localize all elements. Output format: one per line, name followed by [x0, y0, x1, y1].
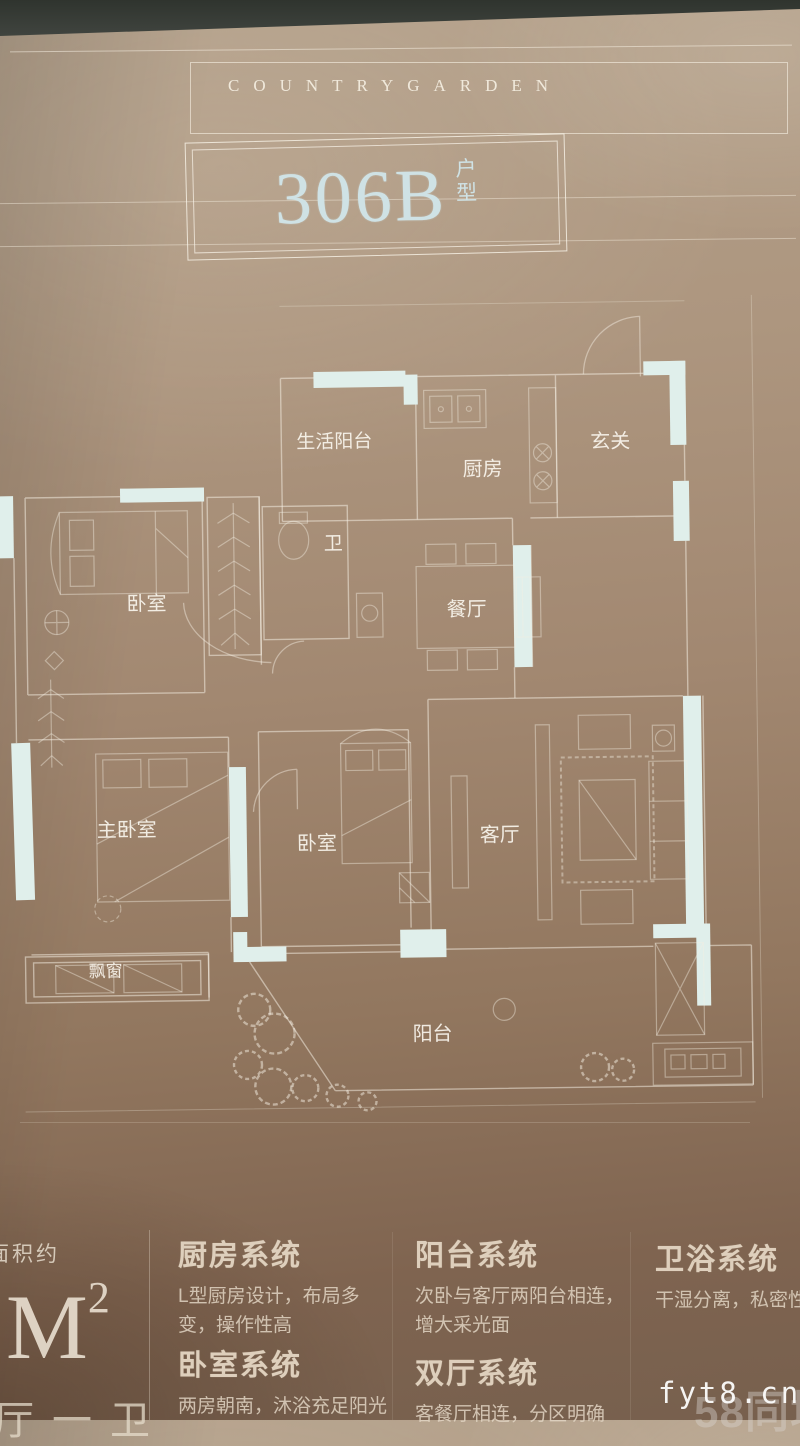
label-bedroom: 卧室: [126, 592, 166, 616]
bed-bedroom2: [340, 729, 412, 864]
info-column-kitchen: 厨房系统 L型厨房设计，布局多变，操作性高: [178, 1232, 396, 1340]
label-dining: 餐厅: [447, 598, 487, 622]
balcony-bench: [653, 1042, 754, 1085]
layout-summary-partial: 厅一卫: [0, 1388, 168, 1446]
bedroom2-rug-lines: [399, 872, 429, 902]
bath-door-arc: [272, 641, 304, 673]
label-bedroom2: 卧室: [297, 832, 337, 856]
hall-cabinet: [451, 776, 469, 888]
master-rug: [95, 896, 121, 922]
wardrobe-hangers-left: [38, 679, 65, 767]
balcony-system-title: 阳台系统: [415, 1232, 637, 1274]
label-balcony: 阳台: [412, 1022, 452, 1046]
label-foyer: 玄关: [590, 430, 630, 454]
label-service-balcony: 生活阳台: [296, 430, 372, 453]
brand-frame: [190, 62, 788, 134]
kitchen-sink: [424, 390, 487, 429]
label-living: 客厅: [480, 823, 520, 847]
halls-system-title: 双厅系统: [415, 1350, 645, 1392]
bedroom-system-title: 卧室系统: [178, 1342, 408, 1384]
bathroom-system-desc: 干湿分离，私密性: [655, 1287, 800, 1316]
floor-plan-drawing: 生活阳台 厨房 玄关 卧室 卫 餐厅 主卧室 卧室 客厅 飘窗 阳台: [0, 290, 776, 1121]
info-column-bathroom: 卫浴系统 干湿分离，私密性: [655, 1236, 800, 1316]
label-bath: 卫: [324, 534, 343, 555]
bed-bedroom1: [50, 511, 188, 595]
tv-cabinet: [535, 725, 552, 920]
info-column-bedroom: 卧室系统 两房朝南，沐浴充足阳光: [178, 1342, 408, 1422]
label-kitchen: 厨房: [463, 457, 503, 481]
area-digit: 8: [0, 1258, 2, 1378]
balcony-plants: [233, 989, 635, 1113]
site-watermark: fyt8.cn: [658, 1376, 800, 1410]
kitchen-system-desc: L型厨房设计，布局多变，操作性高: [178, 1283, 396, 1340]
frame-line-top: [10, 45, 792, 53]
area-unit: M: [6, 1281, 88, 1373]
area-superscript: 2: [88, 1276, 110, 1320]
walls-thick: [0, 361, 711, 1016]
unit-type-char-1: 户: [455, 157, 477, 182]
unit-type-char-2: 型: [456, 182, 478, 207]
unit-code: 306B: [274, 153, 448, 242]
label-bay-window: 飘窗: [89, 962, 123, 981]
entry-door-arc: [583, 316, 641, 377]
plan-bottom-line: [20, 1122, 750, 1123]
unit-type-label: 户 型: [455, 157, 477, 206]
washbasin: [356, 593, 383, 637]
info-column-balcony: 阳台系统 次卧与客厅两阳台相连，增大采光面: [415, 1232, 637, 1340]
floor-plan: 生活阳台 厨房 玄关 卧室 卫 餐厅 主卧室 卧室 客厅 飘窗 阳台: [0, 290, 776, 1121]
balcony-table: [493, 998, 515, 1020]
info-column-halls: 双厅系统 客餐厅相连，分区明确: [415, 1350, 645, 1430]
area-value: 8 M 2: [0, 1258, 110, 1378]
hall-diamond: [45, 651, 63, 669]
bathroom-system-title: 卫浴系统: [655, 1236, 800, 1278]
unit-title-box: 306B 户 型: [185, 133, 568, 260]
living-rug: [561, 756, 655, 882]
walls-thin: [11, 362, 753, 1095]
label-master-bedroom: 主卧室: [97, 818, 157, 842]
dimension-lines: [14, 295, 762, 1112]
closet-hangers: [217, 503, 251, 649]
brand-title: COUNTRYGARDEN: [228, 76, 562, 96]
unit-title-inner-frame: 306B 户 型: [192, 141, 560, 254]
bedroom-system-desc: 两房朝南，沐浴充足阳光: [178, 1393, 408, 1422]
sofa-set: [578, 714, 689, 924]
kitchen-stove: [529, 388, 558, 503]
photo-background-edge: [0, 0, 800, 38]
washbasin-bowl: [362, 605, 378, 621]
halls-system-desc: 客餐厅相连，分区明确: [415, 1401, 645, 1430]
kitchen-system-title: 厨房系统: [178, 1232, 396, 1274]
balcony-system-desc: 次卧与客厅两阳台相连，增大采光面: [415, 1283, 637, 1340]
